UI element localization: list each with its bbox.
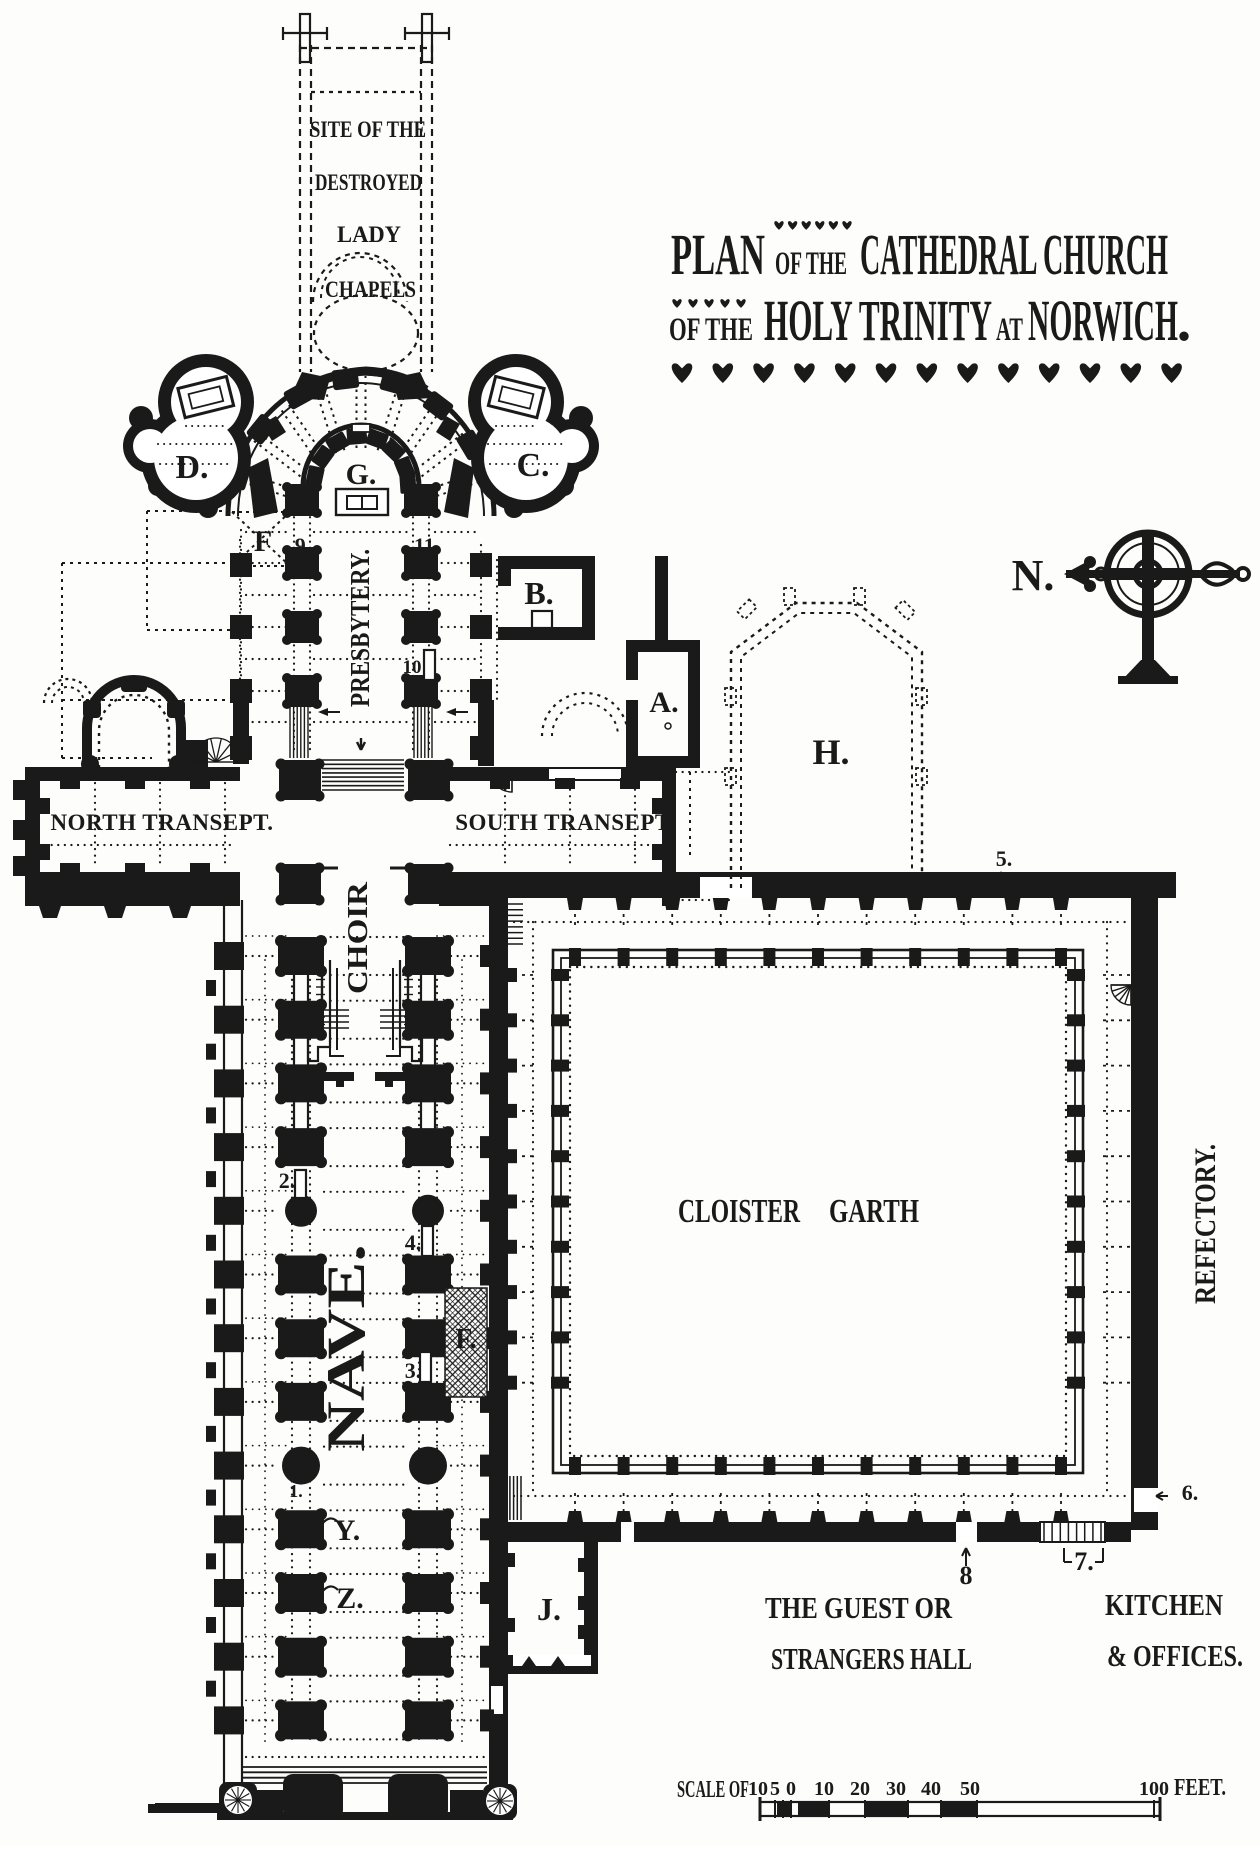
svg-text:D.: D. (175, 449, 208, 486)
svg-text:KITCHEN: KITCHEN (1105, 1587, 1223, 1622)
svg-text:PLAN: PLAN (671, 222, 765, 287)
svg-text:7.: 7. (1074, 1547, 1094, 1576)
svg-text:100: 100 (1139, 1778, 1169, 1800)
svg-text:GARTH: GARTH (829, 1193, 919, 1230)
svg-text:SITE OF THE: SITE OF THE (310, 117, 426, 142)
svg-text:SCALE OF: SCALE OF (677, 1777, 749, 1803)
svg-text:4.: 4. (405, 1230, 422, 1255)
svg-text:Y.: Y. (334, 1514, 360, 1547)
svg-text:20: 20 (850, 1778, 870, 1800)
svg-text:3.: 3. (405, 1358, 422, 1383)
svg-text:6.: 6. (1182, 1480, 1199, 1505)
svg-text:0: 0 (786, 1778, 796, 1800)
svg-text:OF THE: OF THE (669, 312, 753, 348)
svg-text:J.: J. (537, 1591, 561, 1627)
svg-text:Z.: Z. (336, 1582, 364, 1615)
svg-text:40: 40 (921, 1778, 941, 1800)
svg-text:AT: AT (996, 312, 1023, 348)
svg-text:G.: G. (346, 458, 377, 491)
svg-text:STRANGERS HALL: STRANGERS HALL (771, 1641, 972, 1676)
svg-text:DESTROYED: DESTROYED (315, 170, 422, 195)
svg-text:10: 10 (814, 1778, 834, 1800)
svg-text:5.: 5. (996, 846, 1013, 871)
svg-text:10: 10 (748, 1778, 768, 1800)
svg-text:1.: 1. (289, 1481, 303, 1501)
svg-text:SOUTH TRANSEPT: SOUTH TRANSEPT (455, 810, 671, 835)
svg-text:B.: B. (524, 575, 553, 611)
svg-text:CLOISTER: CLOISTER (678, 1193, 800, 1230)
svg-text:C.: C. (516, 447, 549, 484)
svg-text:FEET.: FEET. (1174, 1775, 1226, 1801)
svg-text:N.: N. (1012, 551, 1055, 600)
svg-text:LADY: LADY (337, 222, 401, 247)
svg-text:2.: 2. (279, 1168, 296, 1193)
svg-text:CHAPELS: CHAPELS (325, 277, 416, 302)
svg-text:NORWICH: NORWICH (1028, 288, 1178, 353)
svg-text:F.: F. (455, 1324, 477, 1355)
svg-text:& OFFICES.: & OFFICES. (1107, 1638, 1243, 1673)
svg-text:OF THE: OF THE (775, 246, 847, 282)
svg-text:50: 50 (960, 1778, 980, 1800)
svg-text:A.: A. (649, 686, 678, 719)
svg-text:.: . (1177, 288, 1192, 353)
svg-text:PRESBYTERY.: PRESBYTERY. (345, 549, 375, 707)
svg-text:NORTH TRANSEPT.: NORTH TRANSEPT. (50, 810, 273, 835)
svg-text:H.: H. (812, 732, 849, 772)
svg-text:10: 10 (403, 657, 422, 678)
svg-text:NAVE.: NAVE. (316, 1244, 376, 1452)
svg-text:30: 30 (886, 1778, 906, 1800)
svg-text:5: 5 (770, 1778, 780, 1800)
svg-text:THE GUEST OR: THE GUEST OR (765, 1590, 952, 1625)
svg-text:HOLY TRINITY: HOLY TRINITY (764, 288, 992, 353)
svg-text:CATHEDRAL CHURCH: CATHEDRAL CHURCH (860, 222, 1168, 287)
svg-text:REFECTORY.: REFECTORY. (1189, 1144, 1222, 1304)
